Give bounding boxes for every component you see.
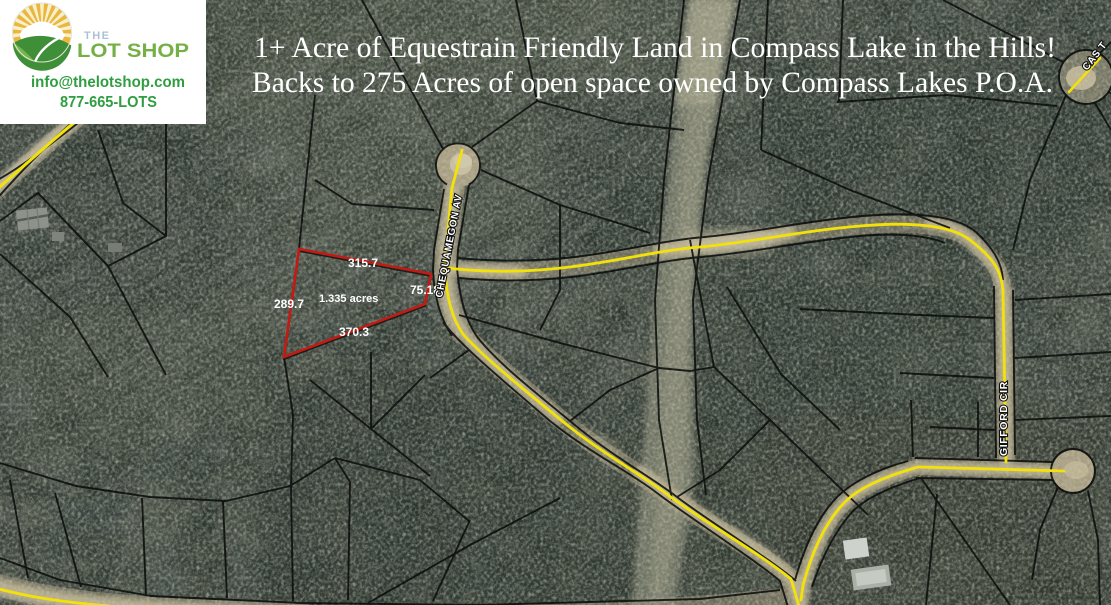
svg-text:1+ Acre of Equestrain Friendly: 1+ Acre of Equestrain Friendly Land in C… [254,31,1056,64]
svg-text:289.7: 289.7 [274,297,304,311]
svg-text:LOT SHOP: LOT SHOP [77,40,189,62]
svg-text:877-665-LOTS: 877-665-LOTS [60,94,157,111]
svg-text:1.335 acres: 1.335 acres [319,293,378,305]
svg-text:Backs to 275 Acres of open spa: Backs to 275 Acres of open space owned b… [252,66,1053,99]
svg-text:370.3: 370.3 [339,325,369,339]
svg-text:info@thelotshop.com: info@thelotshop.com [31,74,185,91]
svg-text:315.7: 315.7 [348,256,378,270]
svg-text:GIFFORD CIR: GIFFORD CIR [998,381,1010,456]
